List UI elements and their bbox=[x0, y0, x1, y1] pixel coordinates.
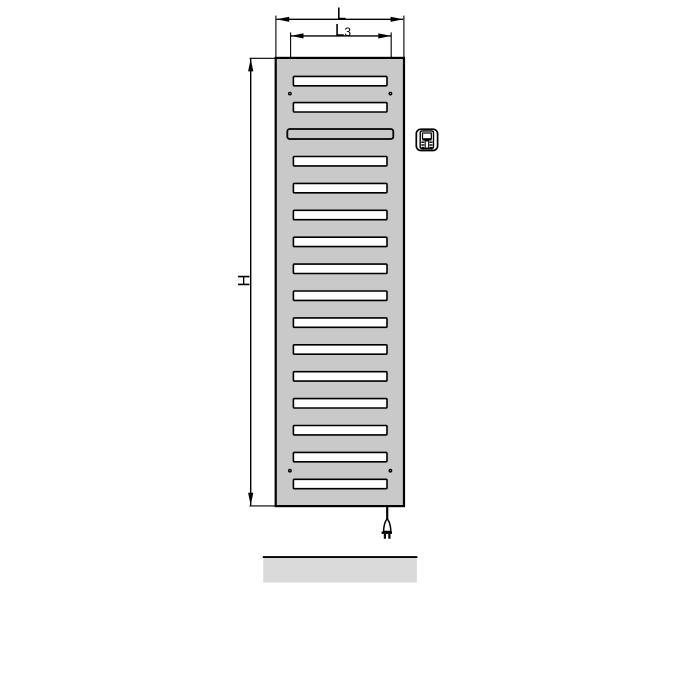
svg-text:H: H bbox=[235, 274, 254, 286]
svg-text:L3: L3 bbox=[335, 20, 351, 39]
